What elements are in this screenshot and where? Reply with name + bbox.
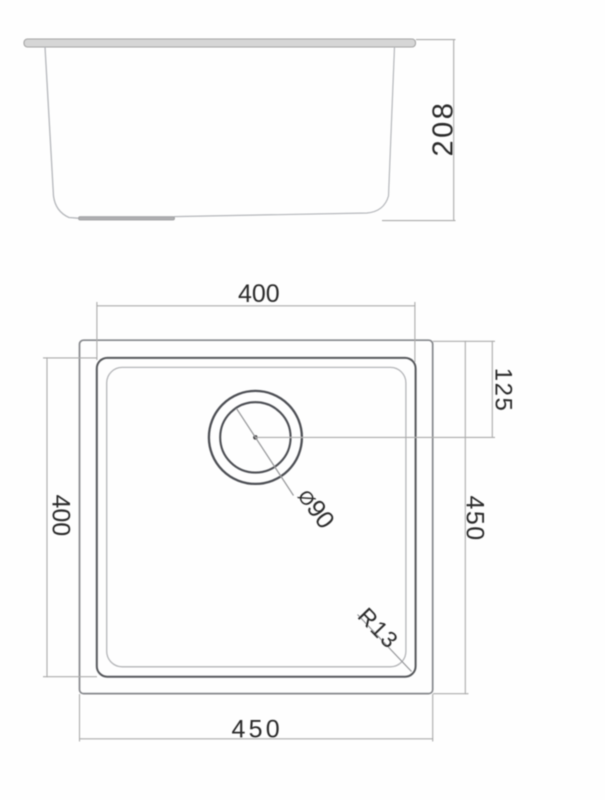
svg-text:R13: R13: [353, 602, 404, 654]
svg-text:400: 400: [238, 280, 280, 308]
svg-text:450: 450: [232, 716, 283, 744]
svg-text:125: 125: [490, 368, 517, 413]
svg-text:Ø90: Ø90: [292, 483, 340, 534]
svg-text:400: 400: [47, 495, 75, 537]
svg-text:208: 208: [428, 101, 460, 157]
svg-text:450: 450: [461, 496, 489, 542]
